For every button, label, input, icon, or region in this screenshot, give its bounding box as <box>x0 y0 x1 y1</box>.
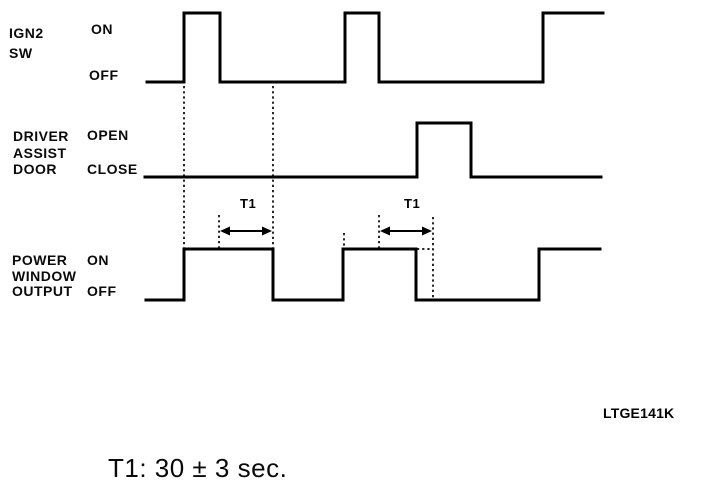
door-high-level-label: OPEN <box>87 128 129 142</box>
figure-code: LTGE141K <box>603 406 674 420</box>
signal-name-line: OUTPUT <box>12 284 76 300</box>
signal-name-line: DRIVER <box>13 128 69 145</box>
waveform-driver-assist-door <box>145 123 601 177</box>
timing-diagram: IGN2 SW DRIVER ASSIST DOOR POWER WINDOW … <box>0 0 704 492</box>
output-low-level-label: OFF <box>87 284 117 298</box>
t1-interval-label-1: T1 <box>240 197 256 210</box>
ign2-sw-low-level-label: OFF <box>89 68 119 82</box>
ign2-sw-high-level-label: ON <box>91 22 113 36</box>
door-low-level-label: CLOSE <box>87 162 138 176</box>
t1-definition-caption: T1: 30 ± 3 sec. <box>108 455 287 481</box>
t1-interval-label-2: T1 <box>404 197 420 210</box>
signal-name-line: WINDOW <box>12 269 76 285</box>
signal-name-line: SW <box>9 43 44 63</box>
signal-name-line: ASSIST <box>13 145 69 162</box>
double-arrow-t1-1 <box>220 227 272 236</box>
arrowhead-left-icon <box>220 227 230 236</box>
waveform-ign2-sw <box>147 13 603 82</box>
signal-name-ign2-sw: IGN2 SW <box>9 23 44 63</box>
signal-name-line: DOOR <box>13 161 69 178</box>
waveform-power-window-output <box>146 249 600 300</box>
signal-name-driver-assist-door: DRIVER ASSIST DOOR <box>13 128 69 178</box>
output-high-level-label: ON <box>87 253 109 267</box>
arrowhead-right-icon <box>422 227 432 236</box>
signal-name-line: IGN2 <box>9 23 44 43</box>
arrowhead-left-icon <box>380 227 390 236</box>
double-arrow-t1-2 <box>380 227 432 236</box>
arrowhead-right-icon <box>262 227 272 236</box>
signal-name-line: POWER <box>12 253 76 269</box>
signal-name-power-window-output: POWER WINDOW OUTPUT <box>12 253 76 300</box>
